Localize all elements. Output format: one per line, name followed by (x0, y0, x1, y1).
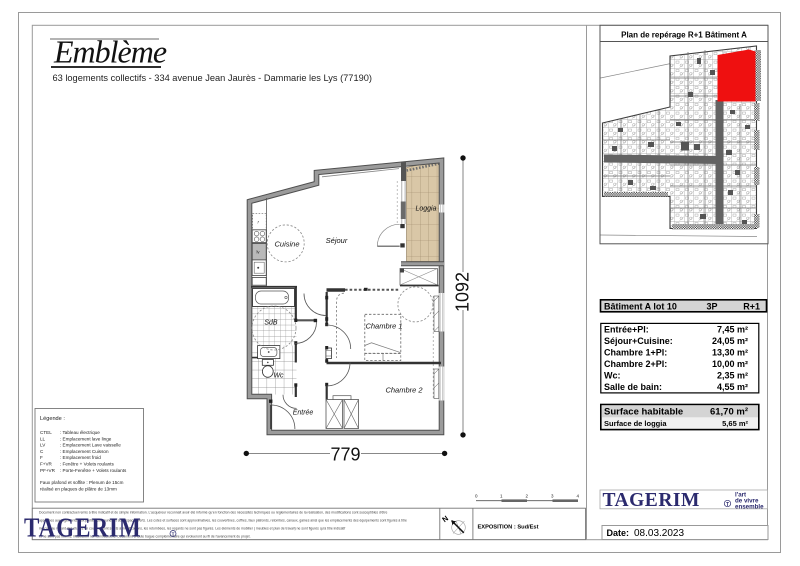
svg-text:2,35 m²: 2,35 m² (717, 371, 748, 381)
svg-text:Faux plafond et soffite : Plen: Faux plafond et soffite : Plenum de 15cm (40, 480, 124, 485)
svg-text:Séjour+Cuisine:: Séjour+Cuisine: (604, 336, 673, 346)
svg-text:Date:: Date: (607, 528, 630, 538)
svg-text:: Fenêtre + Volets roulants: : Fenêtre + Volets roulants (60, 462, 114, 467)
svg-text:3P: 3P (706, 301, 717, 311)
svg-text:TAGERIM: TAGERIM (603, 490, 700, 511)
svg-text:Plan de repérage R+1 Bâtiment: Plan de repérage R+1 Bâtiment A (621, 31, 747, 40)
svg-text:PF+VR: PF+VR (40, 468, 56, 473)
svg-text:63 logements collectifs - 334: 63 logements collectifs - 334 avenue Jea… (53, 73, 372, 83)
svg-text:: Tableau électrique: : Tableau électrique (60, 430, 100, 435)
svg-text:08.03.2023: 08.03.2023 (634, 528, 684, 539)
svg-text:Chambre 2: Chambre 2 (385, 386, 423, 395)
svg-text:Chambre 1: Chambre 1 (365, 322, 402, 331)
svg-text:Surface habitable: Surface habitable (604, 407, 683, 418)
svg-text:LL: LL (40, 436, 46, 441)
svg-text:13,30 m²: 13,30 m² (712, 348, 748, 358)
svg-text:4,55 m²: 4,55 m² (717, 382, 748, 392)
svg-text:EXPOSITION : Sud/Est: EXPOSITION : Sud/Est (478, 524, 539, 530)
svg-text:Cuisine: Cuisine (274, 240, 299, 249)
svg-text:Légende :: Légende : (40, 416, 65, 422)
svg-text:Emblème: Emblème (53, 34, 167, 70)
svg-text:Séjour: Séjour (326, 236, 348, 245)
svg-text:SdB: SdB (264, 320, 278, 327)
svg-text:: Emplacement froid: : Emplacement froid (60, 455, 101, 460)
svg-text:10,00 m²: 10,00 m² (712, 359, 748, 369)
svg-text:Entrée: Entrée (293, 410, 314, 417)
svg-text:Chambre 2+Pl:: Chambre 2+Pl: (604, 359, 667, 369)
svg-text:Wc: Wc (273, 373, 284, 380)
svg-text:Chambre 1+Pl:: Chambre 1+Pl: (604, 348, 667, 358)
svg-text:T: T (726, 502, 729, 508)
svg-text:Bâtiment A lot 10: Bâtiment A lot 10 (604, 301, 677, 311)
svg-text:61,70 m²: 61,70 m² (710, 407, 748, 418)
svg-text:T: T (172, 532, 175, 537)
svg-text:: Emplacement Cuisson: : Emplacement Cuisson (60, 449, 109, 454)
svg-text:CTEL: CTEL (40, 430, 52, 435)
svg-text:R+1: R+1 (743, 301, 760, 311)
svg-text:Entrée+Pl:: Entrée+Pl: (604, 325, 649, 335)
svg-text:779: 779 (330, 445, 360, 465)
svg-text:: Porte-Fenêtre + Volets roula: : Porte-Fenêtre + Volets roulants (60, 468, 127, 473)
svg-text:1092: 1092 (453, 272, 473, 312)
svg-text:réalisé en plaques de plâtre d: réalisé en plaques de plâtre de 13mm (40, 487, 117, 492)
svg-text:Loggia: Loggia (415, 206, 436, 213)
svg-text:F+VR: F+VR (40, 462, 53, 467)
svg-text:: Emplacement Lave vaisselle: : Emplacement Lave vaisselle (60, 443, 121, 448)
svg-text:ensemble: ensemble (735, 504, 764, 511)
svg-text:TAGERIM: TAGERIM (24, 513, 142, 543)
svg-text:24,05 m²: 24,05 m² (712, 336, 748, 346)
svg-text:5,65 m²: 5,65 m² (722, 419, 748, 428)
svg-text:: Emplacement lave linge: : Emplacement lave linge (60, 436, 112, 441)
svg-text:Salle de bain:: Salle de bain: (604, 382, 662, 392)
svg-text:F: F (40, 455, 43, 460)
svg-text:Surface de loggia: Surface de loggia (604, 419, 667, 428)
svg-text:7,45 m²: 7,45 m² (717, 325, 748, 335)
svg-text:Wc:: Wc: (604, 371, 621, 381)
